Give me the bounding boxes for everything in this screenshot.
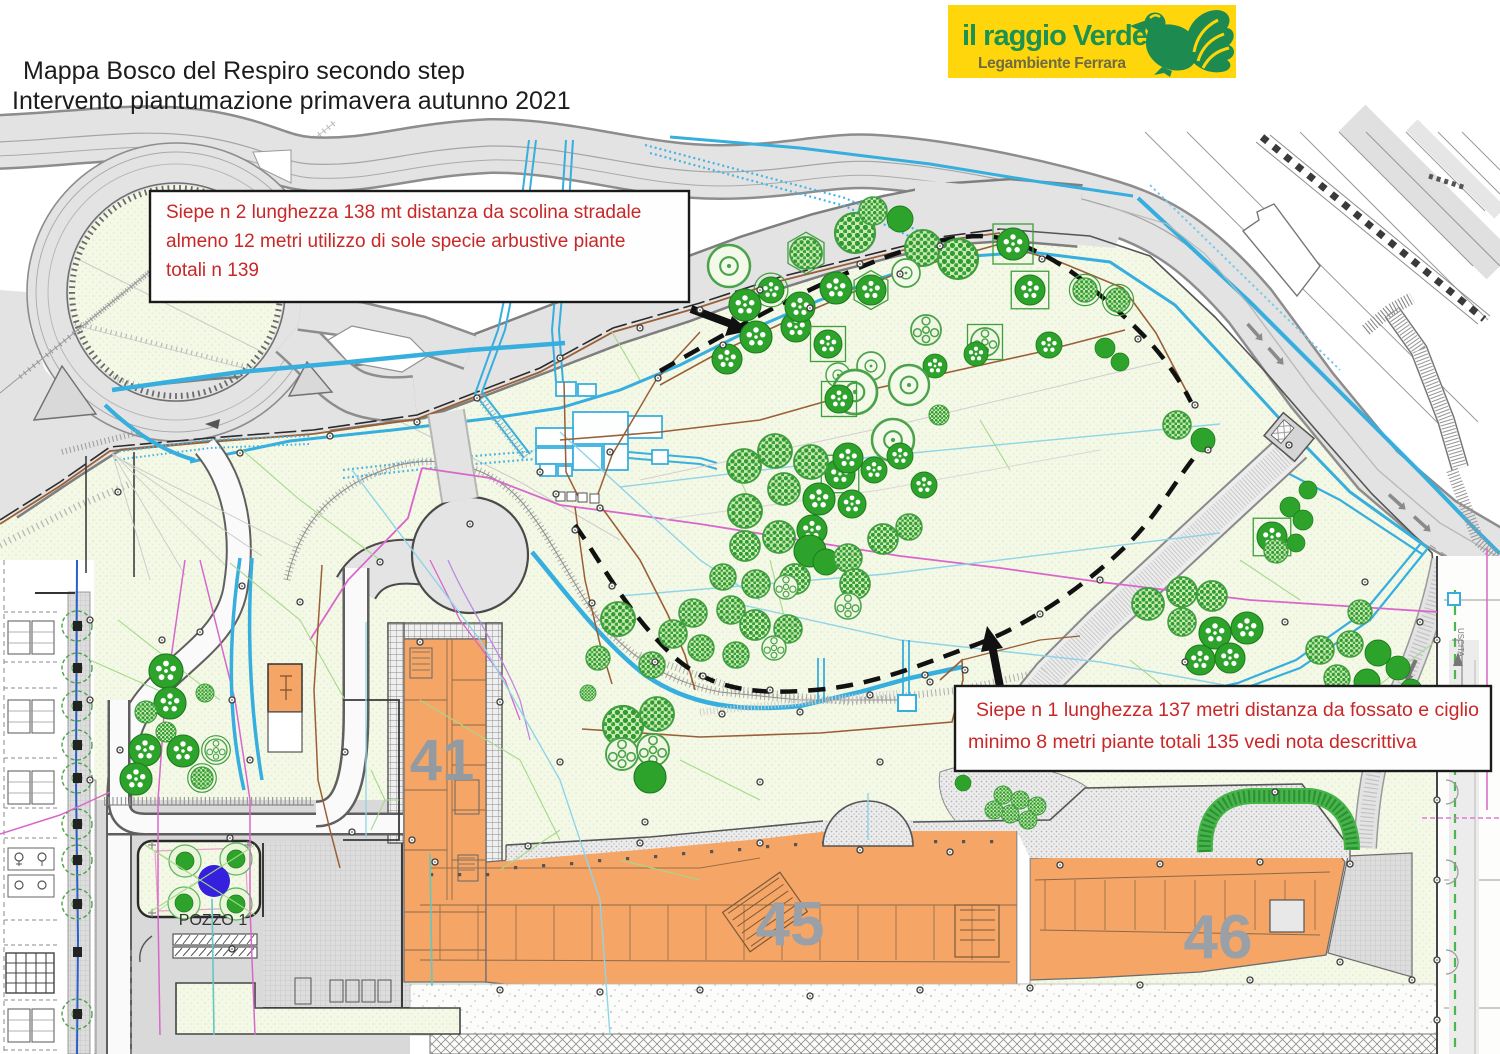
svg-text:Intervento piantumazione prima: Intervento piantumazione primavera autun…	[12, 87, 571, 115]
svg-text:Siepe n 1 lunghezza 137 metri: Siepe n 1 lunghezza 137 metri distanza d…	[976, 699, 1479, 721]
svg-text:Mappa Bosco del Respiro secon: Mappa Bosco del Respiro secondo step	[23, 57, 465, 85]
svg-text:totali n 139: totali n 139	[166, 260, 259, 281]
svg-text:USCITA: USCITA	[1456, 628, 1465, 657]
svg-text:il raggio Verde: il raggio Verde	[962, 20, 1148, 52]
svg-text:41: 41	[410, 728, 475, 793]
svg-text:45: 45	[756, 890, 825, 959]
svg-text:Legambiente Ferrara: Legambiente Ferrara	[978, 55, 1126, 72]
svg-text:Siepe n 2 lunghezza 138 mt dis: Siepe n 2 lunghezza 138 mt distanza da s…	[166, 202, 641, 223]
svg-text:minimo 8 metri piante totali 1: minimo 8 metri piante totali 135 vedi no…	[968, 731, 1417, 753]
svg-text:46: 46	[1184, 903, 1253, 972]
svg-text:almeno 12 metri utilizzo di so: almeno 12 metri utilizzo di sole specie …	[166, 231, 625, 252]
